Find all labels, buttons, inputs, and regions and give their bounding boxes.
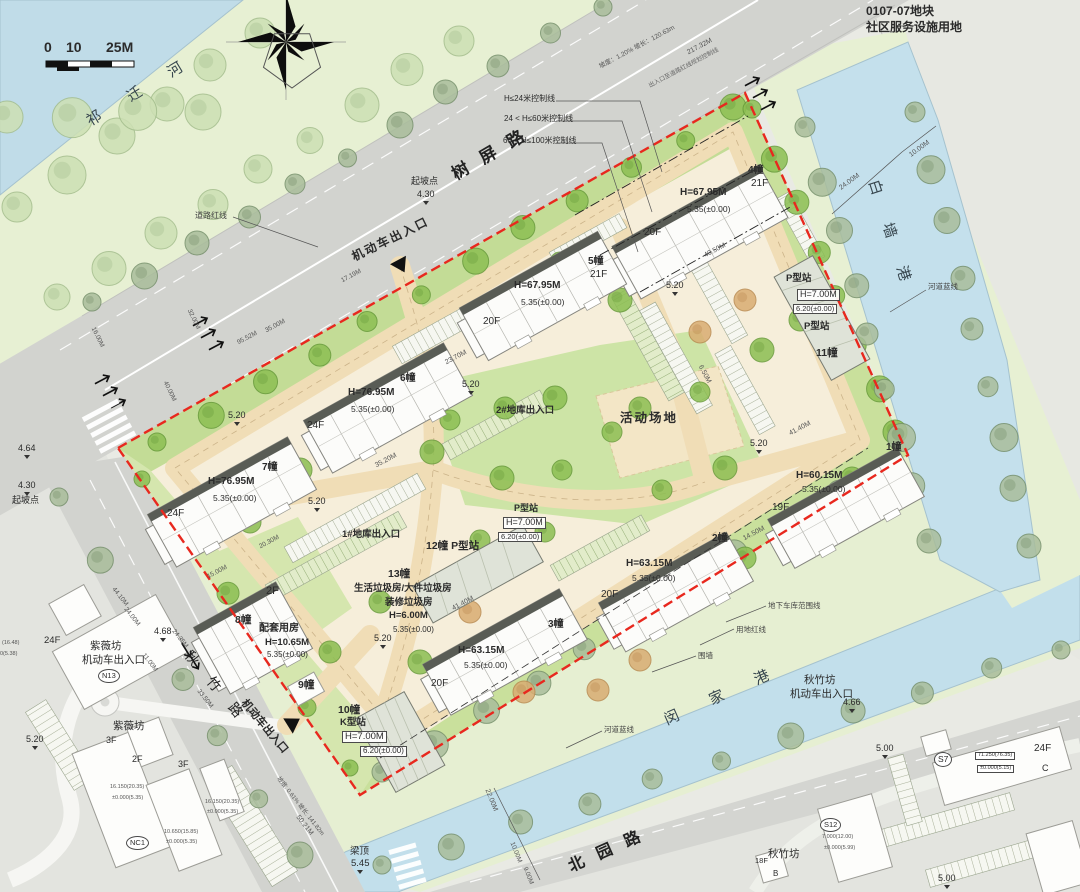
tree-crown bbox=[104, 123, 120, 139]
tree-crown bbox=[512, 814, 523, 825]
tree-crown bbox=[494, 470, 505, 481]
tree-crown bbox=[679, 134, 687, 142]
tree-crown bbox=[91, 551, 103, 563]
tree-crown bbox=[597, 1, 605, 9]
tree-crown bbox=[605, 425, 614, 434]
tree-crown bbox=[782, 727, 794, 739]
tree-crown bbox=[693, 385, 702, 394]
tree-crown bbox=[632, 652, 642, 662]
tree-crown bbox=[955, 270, 966, 281]
tree-crown bbox=[632, 400, 642, 410]
tree-crown bbox=[291, 846, 303, 858]
tree-crown bbox=[845, 703, 856, 714]
tree-crown bbox=[915, 685, 925, 695]
tree-crown bbox=[372, 594, 382, 604]
tree-crown bbox=[1055, 644, 1063, 652]
tree-crown bbox=[288, 177, 297, 186]
tree-crown bbox=[473, 533, 482, 542]
tree-crown bbox=[754, 342, 765, 353]
tree-crown bbox=[490, 58, 500, 68]
tree-crown bbox=[58, 104, 76, 122]
tree-crown bbox=[151, 436, 159, 444]
tree-crown bbox=[412, 654, 423, 665]
tree-crown bbox=[202, 406, 214, 418]
tree-crown bbox=[737, 292, 747, 302]
tree-crown bbox=[1021, 538, 1032, 549]
site-plan-page: 01025M祁 迁 河树 屏 路H≤24米控制线24 < H≤60米控制线60 … bbox=[0, 0, 1080, 892]
site-plan-canvas bbox=[0, 0, 1080, 892]
tree-crown bbox=[715, 755, 723, 763]
tree-crown bbox=[547, 390, 558, 401]
tree-crown bbox=[350, 93, 365, 108]
tree-crown bbox=[569, 193, 579, 203]
tree-crown bbox=[692, 324, 702, 334]
tree-crown bbox=[203, 194, 217, 208]
tree-crown bbox=[155, 92, 170, 107]
tree-crown bbox=[54, 162, 71, 179]
tree-crown bbox=[312, 347, 322, 357]
tree-crown bbox=[655, 483, 664, 492]
tree-crown bbox=[86, 296, 94, 304]
tree-crown bbox=[437, 84, 448, 95]
tree-crown bbox=[994, 428, 1007, 441]
tree-crown bbox=[150, 222, 164, 236]
tree-crown bbox=[97, 257, 112, 272]
tree-crown bbox=[344, 762, 351, 769]
tree-crown bbox=[242, 209, 252, 219]
tree-crown bbox=[252, 793, 260, 801]
tree-crown bbox=[257, 373, 268, 384]
tree-crown bbox=[612, 292, 623, 303]
tree-crown bbox=[848, 277, 859, 288]
tree-crown bbox=[538, 525, 547, 534]
tree-crown bbox=[248, 159, 261, 172]
tree-crown bbox=[199, 54, 213, 68]
tree-crown bbox=[53, 491, 61, 499]
tree-crown bbox=[1004, 479, 1016, 491]
tree-crown bbox=[301, 131, 313, 143]
tree-crown bbox=[190, 99, 206, 115]
tree-crown bbox=[396, 58, 410, 72]
tree-crown bbox=[250, 23, 264, 37]
tree-crown bbox=[985, 661, 994, 670]
tree-crown bbox=[322, 644, 332, 654]
tree-crown bbox=[175, 672, 185, 682]
tree-crown bbox=[515, 219, 526, 230]
tree-crown bbox=[467, 252, 479, 264]
tree-crown bbox=[210, 729, 219, 738]
tree-crown bbox=[624, 160, 633, 169]
tree-crown bbox=[892, 428, 905, 441]
tree-crown bbox=[555, 463, 564, 472]
tree-crown bbox=[415, 289, 423, 297]
tree-crown bbox=[360, 314, 369, 323]
tree-crown bbox=[812, 172, 825, 185]
tree-crown bbox=[830, 221, 842, 233]
tree-crown bbox=[391, 116, 403, 128]
tree-crown bbox=[544, 26, 553, 35]
tree-crown bbox=[7, 197, 21, 211]
tree-crown bbox=[424, 444, 435, 455]
tree-crown bbox=[497, 400, 507, 410]
tree-crown bbox=[135, 267, 147, 279]
tree-crown bbox=[877, 382, 886, 391]
tree-crown bbox=[582, 796, 592, 806]
tree-crown bbox=[590, 682, 600, 692]
tree-crown bbox=[376, 859, 384, 867]
tree-crown bbox=[449, 31, 463, 45]
tree-crown bbox=[717, 460, 728, 471]
tree-crown bbox=[341, 152, 349, 160]
tree-crown bbox=[48, 288, 60, 300]
tree-crown bbox=[442, 838, 454, 850]
tree-crown bbox=[921, 533, 932, 544]
tree-crown bbox=[645, 772, 654, 781]
tree-crown bbox=[938, 211, 950, 223]
tree-crown bbox=[981, 380, 990, 389]
tree-crown bbox=[124, 98, 141, 115]
tree-crown bbox=[964, 321, 974, 331]
tree-crown bbox=[859, 326, 869, 336]
tree-crown bbox=[220, 586, 230, 596]
tree-crown bbox=[921, 160, 934, 173]
tree-crown bbox=[189, 235, 200, 246]
tree-crown bbox=[908, 105, 917, 114]
tree-crown bbox=[798, 120, 807, 129]
